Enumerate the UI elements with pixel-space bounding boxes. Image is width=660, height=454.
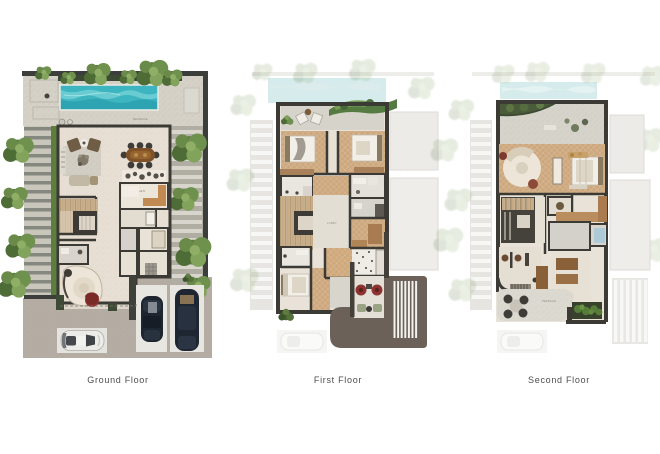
svg-text:TERRACE: TERRACE	[542, 299, 557, 303]
svg-text:TERRACE: TERRACE	[132, 117, 147, 121]
svg-text:First Floor: First Floor	[314, 375, 362, 385]
svg-text:LOBBY: LOBBY	[327, 221, 337, 225]
svg-text:Ground Floor: Ground Floor	[87, 375, 148, 385]
svg-text:Second Floor: Second Floor	[528, 375, 590, 385]
